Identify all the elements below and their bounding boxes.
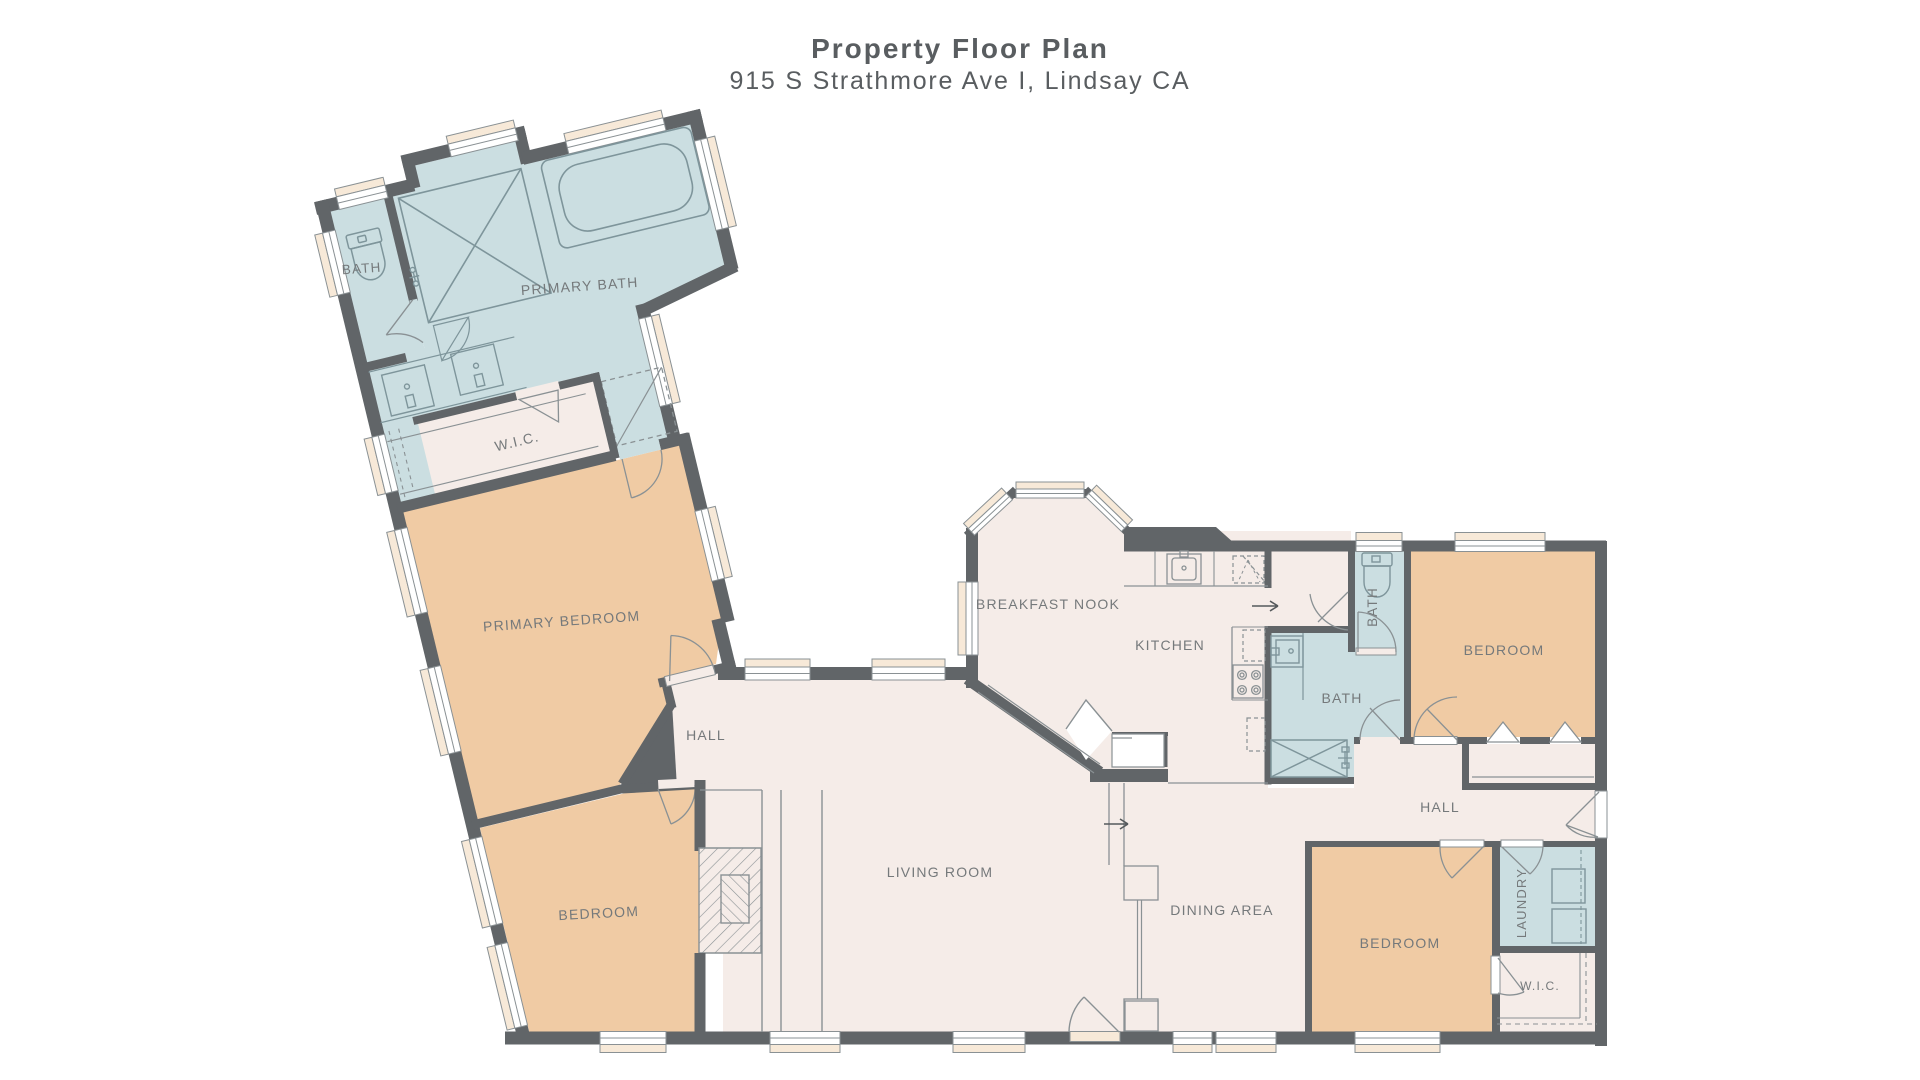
svg-text:BATH: BATH	[1321, 690, 1362, 706]
svg-text:915 S Strathmore Ave I, Lindsa: 915 S Strathmore Ave I, Lindsay CA	[730, 67, 1191, 95]
svg-text:Property Floor Plan: Property Floor Plan	[811, 33, 1109, 64]
svg-text:W.I.C.: W.I.C.	[1520, 979, 1560, 993]
svg-text:DINING AREA: DINING AREA	[1170, 902, 1273, 918]
svg-text:HALL: HALL	[1420, 799, 1460, 815]
svg-text:KITCHEN: KITCHEN	[1135, 637, 1205, 653]
svg-text:BEDROOM: BEDROOM	[1360, 935, 1441, 951]
svg-text:BATH: BATH	[1365, 587, 1380, 627]
svg-text:LIVING ROOM: LIVING ROOM	[887, 864, 994, 880]
svg-text:BREAKFAST NOOK: BREAKFAST NOOK	[976, 596, 1120, 612]
svg-text:BEDROOM: BEDROOM	[1464, 642, 1545, 658]
svg-text:LAUNDRY: LAUNDRY	[1514, 868, 1529, 938]
svg-text:HALL: HALL	[686, 727, 726, 743]
svg-text:BATH: BATH	[341, 260, 382, 278]
